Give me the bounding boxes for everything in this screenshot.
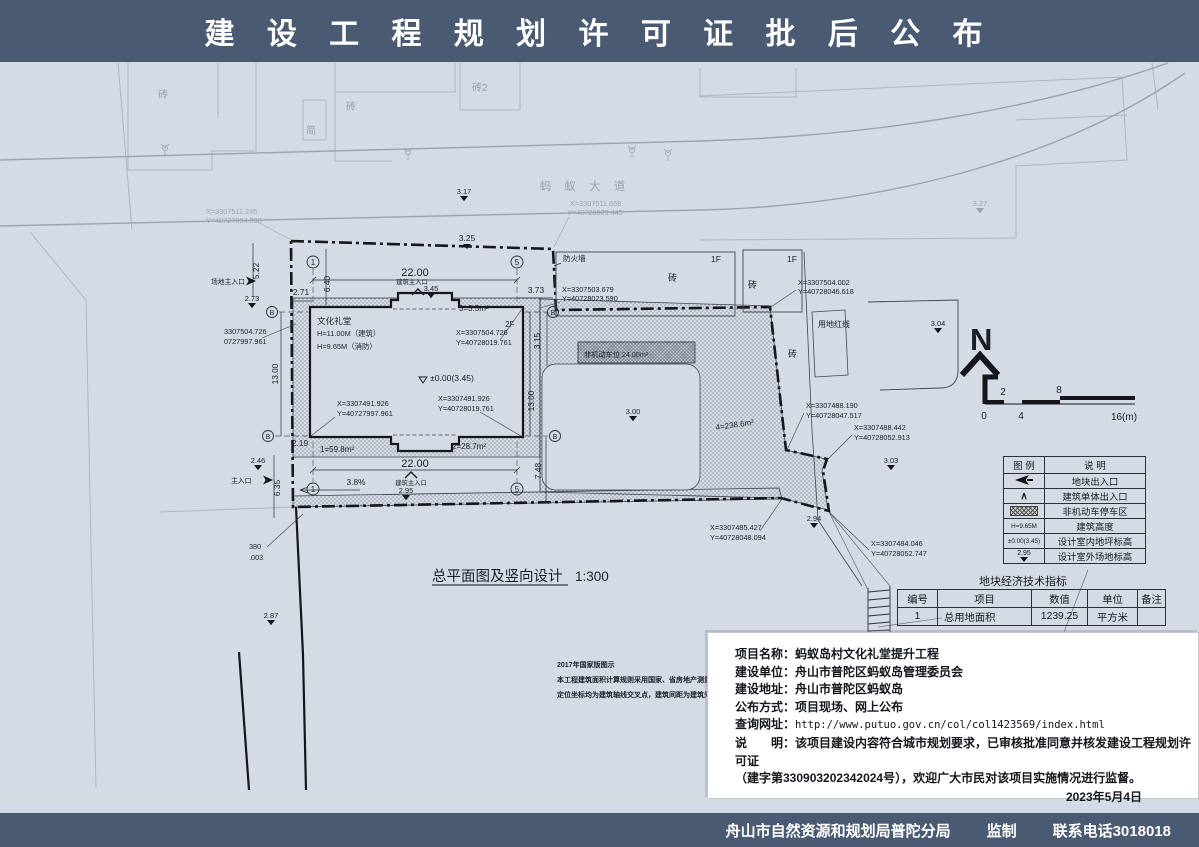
coord-label: X=3307511.668 [570,199,621,208]
dim-3.15: 3.15 [532,333,542,350]
coord-label: X=3307488.442 [854,423,906,432]
road-name-label: 蚂 蚁 大 道 [540,179,631,193]
field-value: 项目现场、网上公布 [795,700,903,714]
coord-label-380: 380 [249,542,261,551]
dim-13.00-left: 13.00 [270,363,280,384]
elevation-2.73: 2.73 [245,294,259,303]
legend-table: 图 例 说 明 地块出入口 ∧ 建筑单体出入口 非机动车停车区 H=9.65M … [1003,456,1146,564]
coord-label: X=3307504.002 [798,278,850,287]
shrub-icons [161,144,672,161]
coord-label: X=3307491.926 [337,399,389,408]
econ-header: 编号 [898,590,938,608]
site-main-entrance-label: 场地主入口 [211,277,245,286]
legend-header-desc: 说 明 [1045,457,1146,474]
econ-header: 备注 [1138,590,1166,608]
elevation-2.87: 2.87 [264,611,278,620]
firewall-leader [554,263,561,266]
existing-brick-label: 砖 [748,279,757,290]
existing-floor-label: 1F [711,254,721,264]
note-line: 2017年国家版图示 [557,660,615,669]
footer-phone: 联系电话3018018 [1053,820,1171,841]
area-3: 3=3.5m² [459,304,489,313]
existing-brick-label: 砖 [668,272,677,283]
elevation-2.46: 2.46 [251,456,265,465]
notice-line-url: 查询网址：http://www.putuo.gov.cn/col/col1423… [735,716,1198,735]
notice-panel: 项目名称：蚂蚁岛村文化礼堂提升工程 建设单位：舟山市普陀区蚂蚁岛管理委员会 建设… [707,632,1199,799]
plan-title: 总平面图及竖向设计 [432,568,563,585]
econ-cell-value: 1239.25 [1032,608,1088,626]
elevation-marker-icon [976,208,984,213]
elevation-marker-icon [248,303,256,308]
econ-header: 项目 [938,590,1032,608]
dim-2.19: 2.19 [292,438,309,448]
elevation-marker-icon [460,196,468,201]
field-label: 项目名称： [735,647,795,661]
context-label-jian: 简 [306,124,316,137]
building-entrance-caret-icon: ∧ [1020,491,1027,502]
coord-label: Y=40728019.761 [456,338,512,347]
grid-label-1: 1 [311,258,316,267]
field-label: 说 明： [735,736,795,750]
field-label: 建设地址： [735,682,795,696]
legend-desc: 非机动车停车区 [1045,504,1146,519]
field-label: 建设单位： [735,665,795,679]
coord-label: X=3307484.046 [871,539,923,548]
coord-label: 0727997.961 [224,337,267,346]
coord-label: Y=40728046.618 [798,287,854,296]
legend-desc: 建筑单体出入口 [1045,489,1146,504]
econ-table: 编号 项目 数值 单位 备注 1 总用地面积 1239.25 平方米 [897,589,1166,626]
coord-label: Y=40728019.761 [438,404,494,413]
elevation-3.00: 3.00 [626,407,640,416]
footer-agency: 舟山市自然资源和规划局普陀分局 [726,820,951,841]
econ-cell-remark [1138,608,1166,626]
legend-icon-indoor-level: ±0.00(3.45) [1004,534,1045,549]
field-label: 查询网址： [735,717,795,731]
coord-label: X=3307491.926 [438,394,490,403]
legend-icon-cell: ∧ [1004,489,1045,504]
building-level: ±0.00(3.45) [430,373,474,383]
building-entrance-bottom-label: 建筑主入口 [395,478,426,487]
scale-tick-2: 2 [1000,387,1006,398]
scale-tick-0: 0 [981,411,987,422]
context-label-brick2: 砖2 [472,81,488,94]
building-entrance-caret-icon [405,472,417,478]
grid-label-b: B [553,434,558,441]
dim-5.22: 5.22 [251,263,261,280]
elevation-marker-icon [254,465,262,470]
grid-label-b: B [266,434,271,441]
coord-label: Y=40728048.094 [710,533,766,542]
scale-tick-8: 8 [1056,385,1062,396]
econ-table-title: 地块经济技术指标 [898,573,1148,589]
elevation-3.04: 3.04 [931,319,945,328]
header-banner: 建 设 工 程 规 划 许 可 证 批 后 公 布 [0,0,1199,62]
field-value: 该项目建设内容符合城市规划要求，已审核批准同意并核发建设工程规划许可证 [735,736,1191,768]
legend-icon-cell [1004,474,1045,489]
coord-label: X=3307511.245 [206,207,257,216]
level-marker-icon [1020,557,1028,562]
grid-label-5: 5 [515,258,520,267]
existing-floor-label: 1F [787,254,797,264]
page-title: 建 设 工 程 规 划 许 可 证 批 后 公 布 [204,9,994,53]
coord-label: X=3307504.726 [456,328,508,337]
elevation-3.03: 3.03 [884,456,898,465]
dim-22.00-bottom: 22.00 [401,458,429,470]
legend-icon-cell [1004,504,1045,519]
grid-label-b: B [551,310,556,317]
econ-header: 数值 [1032,590,1088,608]
firewall-label: 防火墙 [563,253,586,263]
slope-label: 3.8% [347,477,367,487]
scale-bar [985,396,1135,404]
grid-label-b: B [270,310,275,317]
field-value: 舟山市普陀区蚂蚁岛管理委员会 [795,665,963,679]
note-line: 定位坐标均为建筑轴线交叉点，建筑间距为建筑外墙间距 [557,690,732,699]
econ-cell-no: 1 [898,608,938,626]
grid-label-1: 1 [311,485,316,494]
scale-tick-16m: 16(m) [1111,412,1137,423]
legend-desc: 设计室外场地标高 [1045,549,1146,564]
grid-label-5: 5 [515,485,520,494]
dim-3.25: 3.25 [459,233,476,243]
elevation-marker-icon [267,620,275,625]
coord-label: X=3307488.190 [806,401,858,410]
elevation-3.17: 3.17 [457,187,471,196]
coord-label-003: .003 [249,553,263,562]
notice-line-statement2: （建字第330903202342024号），欢迎广大市民对该项目实施情况进行监督… [735,770,1198,788]
coord-label: Y=40728052.747 [871,549,927,558]
building-entrance-top-label: 建筑主入口 [396,277,427,286]
dim-22.00-top: 22.00 [401,267,429,279]
elevation-2.94: 2.94 [807,514,821,523]
coord-label: Y=40728047.517 [806,411,862,420]
legend-header-icon: 图 例 [1004,457,1045,474]
field-value: 舟山市普陀区蚂蚁岛 [795,682,903,696]
field-value: （建字第330903202342024号），欢迎广大市民对该项目实施情况进行监督… [735,771,1141,785]
notice-line-address: 建设地址：舟山市普陀区蚂蚁岛 [735,681,1198,699]
note-line: 本工程建筑面积计算规则采用国家、省房地产测量规范 [556,675,725,684]
area-2: 2=28.7m² [452,442,486,451]
elevation-marker-icon [934,328,942,333]
building-height-fire: H=9.65M（消防） [317,342,377,351]
elevation-marker-icon [810,523,818,528]
planning-permit-poster: 砖 砖 简 砖2 蚂 蚁 大 道 X=3307511.245 Y=4072799… [0,0,1199,847]
legend-desc: 地块出入口 [1045,474,1146,489]
context-label-brick: 砖 [346,100,356,113]
notice-line-statement: 说 明：该项目建设内容符合城市规划要求，已审核批准同意并核发建设工程规划许可证 [735,735,1198,770]
coord-label: X=3307485.427 [710,523,762,532]
notice-line-method: 公布方式：项目现场、网上公布 [735,699,1198,717]
field-label: 公布方式： [735,700,795,714]
legend-icon-height: H=9.65M [1004,519,1045,534]
notice-line-project: 项目名称：蚂蚁岛村文化礼堂提升工程 [735,646,1198,664]
coord-label: Y=40728052.913 [854,433,910,442]
context-label-brick: 砖 [158,88,168,101]
existing-brick-label: 砖 [788,348,797,359]
dim-6.40: 6.40 [322,276,332,293]
area-1: 1=59.8m² [320,445,354,454]
site-entrance-arrow-icon [1013,475,1035,485]
dim-2.71: 2.71 [293,287,310,297]
legend-icon-cell: 2.95 [1004,549,1045,564]
bike-parking-label: 非机动车位 24.00m² [584,350,649,359]
notice-line-owner: 建设单位：舟山市普陀区蚂蚁岛管理委员会 [735,664,1198,682]
notice-date: 2023年5月4日 [735,789,1198,807]
dim-6.35: 6.35 [272,480,282,497]
main-entrance-label: 主入口 [231,476,251,485]
dim-3.73: 3.73 [528,285,545,295]
scale-tick-4: 4 [1018,411,1024,422]
table-row: 1 总用地面积 1239.25 平方米 [898,608,1166,626]
legend-desc: 设计室内地坪标高 [1045,534,1146,549]
north-arrow-icon [962,355,998,404]
elevation-2.95: 2.95 [399,486,413,495]
footer-banner: 舟山市自然资源和规划局普陀分局 监制 联系电话3018018 [0,813,1199,847]
coord-label: Y=40727994.898 [206,216,262,225]
building-name: 文化礼堂 [317,315,352,326]
coord-label: Y=40727997.961 [337,409,393,418]
legend-icon-outdoor-level: 2.95 [1006,551,1042,557]
bike-parking-swatch-icon [1010,506,1038,516]
legend-desc: 建筑高度 [1045,519,1146,534]
redline-label: 用地红线 [818,319,850,329]
elevation-3.27: 3.27 [973,199,987,208]
dim-7.48: 7.48 [533,463,543,480]
north-arrow-label: N [970,322,992,357]
coord-label: Y=40728023.445 [567,208,623,217]
dim-13.00-right: 13.00 [526,390,536,411]
econ-cell-unit: 平方米 [1088,608,1138,626]
notice-url[interactable]: http://www.putuo.gov.cn/col/col1423569/i… [795,719,1105,731]
field-value: 蚂蚁岛村文化礼堂提升工程 [795,647,939,661]
coord-label: X=3307503.679 [562,285,614,294]
coord-label: 3307504.726 [224,327,267,336]
econ-cell-item: 总用地面积 [938,608,1032,626]
building-height-arch: H=11.00M（建筑） [317,329,380,338]
elevation-marker-icon [887,465,895,470]
courtyard [542,364,700,490]
econ-header: 单位 [1088,590,1138,608]
plan-scale: 1:300 [575,569,609,584]
coord-label: Y=40728023.590 [562,294,618,303]
footer-supervise-label: 监制 [987,820,1017,841]
